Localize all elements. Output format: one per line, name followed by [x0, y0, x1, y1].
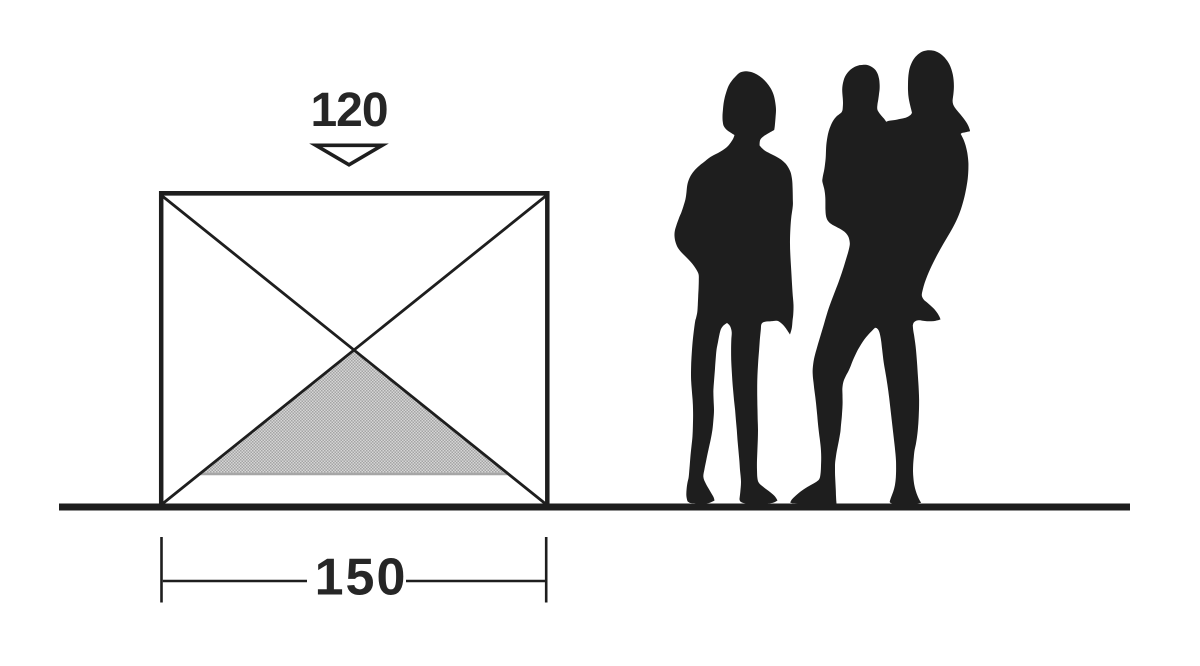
- svg-text:150: 150: [315, 549, 408, 607]
- svg-text:120: 120: [310, 84, 387, 137]
